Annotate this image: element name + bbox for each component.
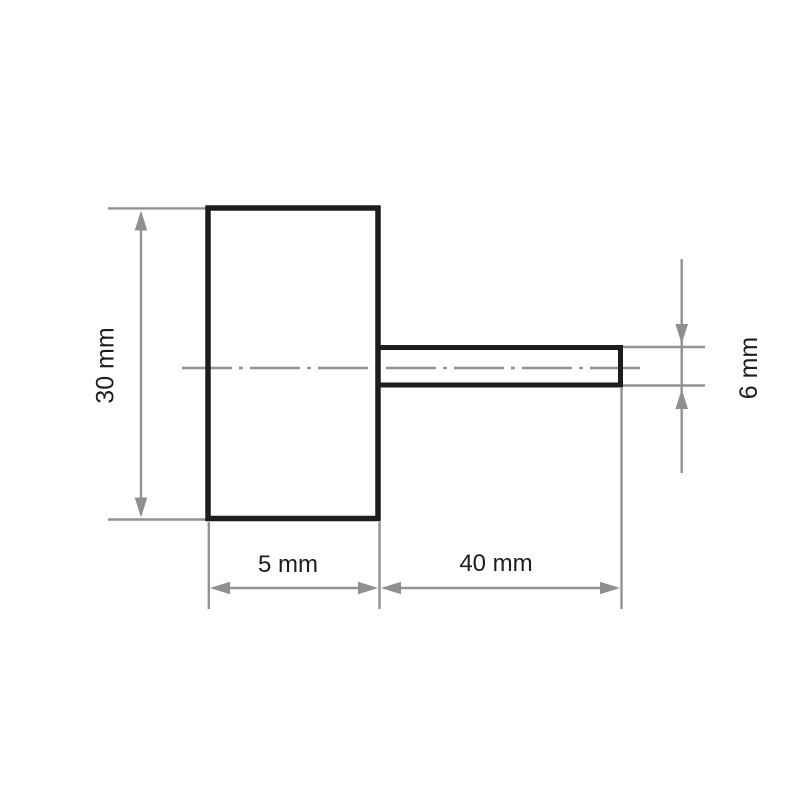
svg-text:6 mm: 6 mm [735, 337, 763, 400]
svg-text:30 mm: 30 mm [92, 327, 120, 403]
svg-text:40 mm: 40 mm [459, 550, 532, 577]
svg-text:5 mm: 5 mm [258, 551, 318, 578]
